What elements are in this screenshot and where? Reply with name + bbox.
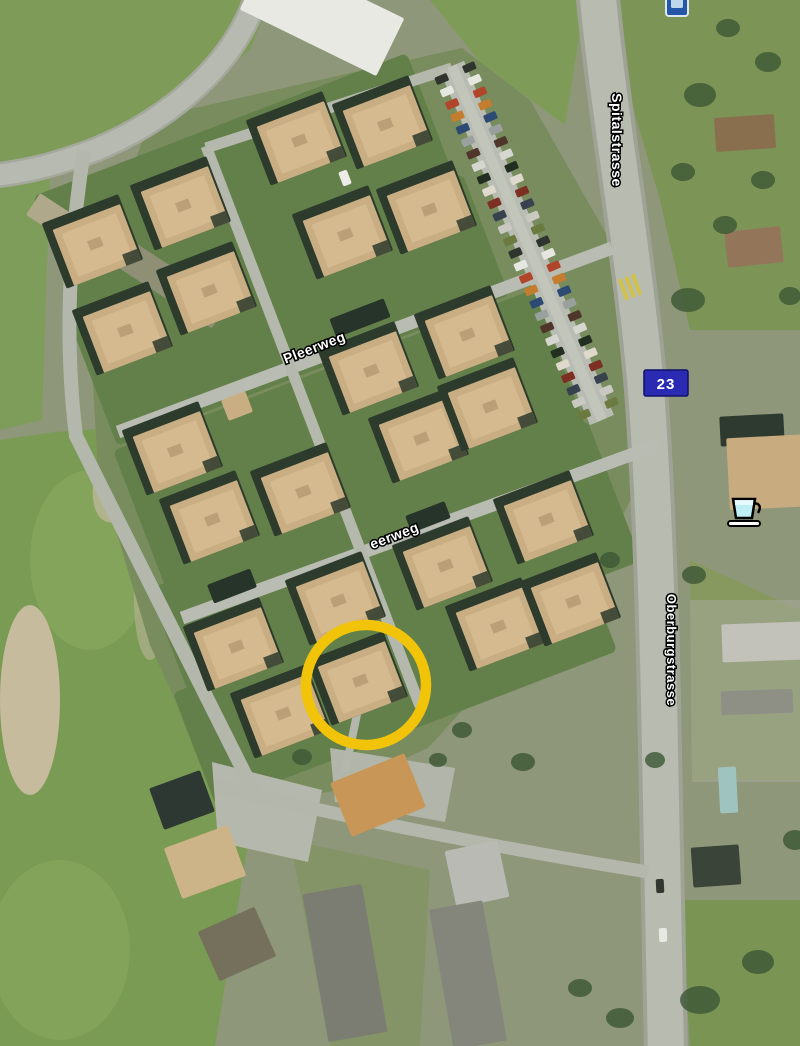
label-spitalstrasse: Spitalstrasse bbox=[609, 93, 625, 187]
tree bbox=[511, 753, 535, 771]
roadsign-icon bbox=[666, 0, 688, 16]
tree bbox=[716, 19, 740, 37]
tree bbox=[568, 979, 592, 997]
tree bbox=[713, 216, 737, 234]
house-roof bbox=[691, 844, 742, 887]
map-viewport[interactable]: Spitalstrasse Oberburgstrasse Pleerweg e… bbox=[0, 0, 800, 1046]
route-badge-number: 23 bbox=[657, 376, 676, 393]
tree bbox=[742, 950, 774, 974]
tree bbox=[751, 171, 775, 189]
tree bbox=[684, 83, 716, 107]
field bbox=[680, 900, 800, 1046]
tree bbox=[755, 52, 781, 72]
commercial-roof bbox=[721, 689, 794, 715]
tree bbox=[292, 749, 312, 765]
tree bbox=[671, 163, 695, 181]
trailer bbox=[718, 767, 738, 814]
house-roof bbox=[724, 226, 783, 268]
commercial-roof bbox=[721, 622, 800, 663]
car bbox=[659, 928, 667, 942]
car bbox=[656, 879, 665, 893]
label-oberburgstrasse: Oberburgstrasse bbox=[664, 594, 679, 706]
tree bbox=[671, 288, 705, 312]
tree bbox=[600, 552, 620, 568]
tree bbox=[645, 752, 665, 768]
tree bbox=[680, 986, 720, 1014]
route-badge: 23 bbox=[644, 370, 688, 396]
aerial-map: Spitalstrasse Oberburgstrasse Pleerweg e… bbox=[0, 0, 800, 1046]
tree bbox=[682, 566, 706, 584]
tree bbox=[779, 287, 800, 305]
house-roof bbox=[714, 114, 776, 152]
tree bbox=[452, 722, 472, 738]
tree bbox=[429, 753, 447, 767]
tree bbox=[606, 1008, 634, 1028]
dirt bbox=[0, 605, 60, 795]
